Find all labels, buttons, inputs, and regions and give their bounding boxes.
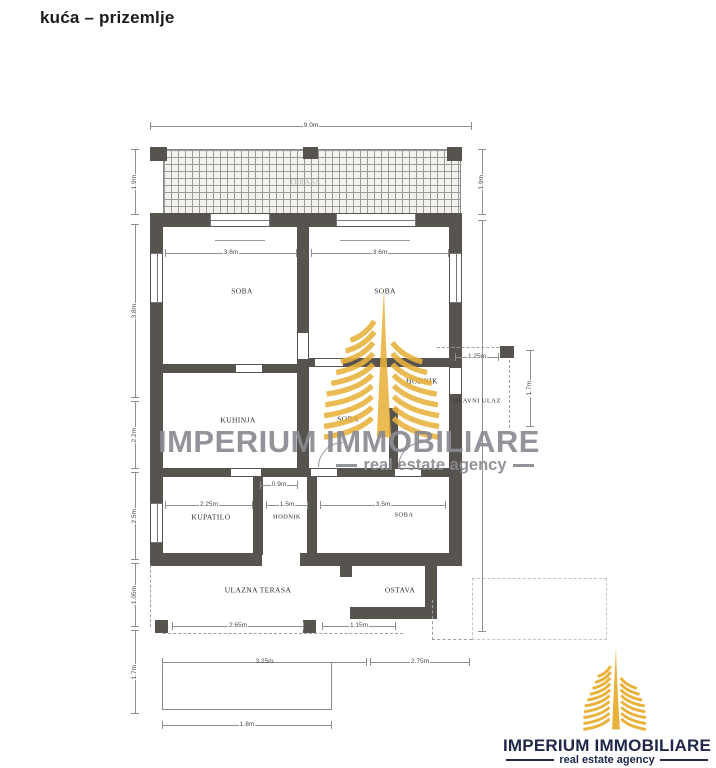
dimension-bottom-left: 3.25m — [162, 658, 367, 666]
room-label-soba1: SOBA — [231, 287, 253, 296]
dimension-left-steps: 1.7m — [131, 630, 139, 714]
room-label-glavni-ulaz: GLAVNI ULAZ — [453, 398, 500, 405]
dimension-line-right-full — [478, 220, 486, 632]
terrace-dashed-right-bottom — [432, 639, 472, 640]
dimension-hodnik-width: 1.5m — [266, 501, 308, 509]
dimension-terrace-inner-left: 2.65m — [172, 622, 304, 630]
wall-hodnik2-vertical — [307, 477, 317, 555]
terrace-dashed-right — [432, 600, 433, 640]
room-label-soba4: SOBA — [395, 512, 414, 519]
terrace-dashed-bottom — [163, 633, 403, 634]
terrace-dashed-left — [150, 565, 151, 627]
porch-dashed-top — [437, 347, 509, 348]
dimension-bottom-right: 2.75m — [370, 658, 470, 666]
room-label-soba3: SOBA — [337, 415, 359, 424]
wall-ostava-bottom — [350, 607, 437, 619]
wall-kuhinja-top — [163, 364, 297, 373]
room-label-soba2: SOBA — [374, 287, 396, 296]
dimension-soba4-width: 3.5m — [320, 501, 446, 509]
room-label-ostava: OSTAVA — [385, 586, 415, 595]
wall-bottom-left — [150, 553, 262, 566]
dimension-terrace-height-left: 1.9m — [131, 149, 139, 215]
window-left-upper — [151, 253, 162, 303]
wall-post — [447, 147, 462, 161]
dimension-porch-width: 1.25m — [455, 353, 499, 361]
logo-tagline-text: real estate agency — [559, 754, 654, 766]
door-swing-arc — [398, 442, 423, 467]
window-top-right — [336, 214, 416, 226]
dimension-top-width: 9.0m — [150, 122, 472, 130]
porch-post — [500, 346, 514, 358]
dimension-terrace-inner-right: 1.15m — [322, 622, 396, 630]
room-label-hodnik2: HODNIK — [273, 514, 301, 521]
door-gap-entrance — [450, 368, 461, 394]
room-label-terasa: TERASA — [289, 178, 321, 187]
window-sill-line — [340, 240, 410, 241]
terrace-post — [303, 620, 316, 633]
room-label-hodnik1: HODNIK — [406, 377, 438, 386]
door-gap-soba-lower — [395, 469, 421, 476]
door-gap-hodnik — [311, 469, 337, 476]
door-gap-middle — [298, 333, 308, 359]
dimension-soba1-width: 3.6m — [165, 249, 297, 257]
dimension-steps-width: 1.8m — [162, 721, 332, 729]
dimension-rooms-height: 3.8m — [131, 224, 139, 398]
dimension-porch-height: 1.7m — [526, 350, 534, 427]
side-terrace-dashed-outline — [472, 578, 607, 640]
dimension-left-mid: 2.2m — [131, 401, 139, 469]
logo-building-icon — [574, 646, 658, 732]
room-label-kupatilo: KUPATILO — [191, 513, 230, 522]
wall-hodnik-vertical — [389, 408, 398, 470]
dimension-kupatilo-width: 2.25m — [165, 501, 253, 509]
logo-brand-text: IMPERIUM IMMOBILIARE — [498, 736, 716, 756]
window-left-lower — [151, 503, 162, 543]
porch-dashed-side — [509, 360, 510, 428]
logo-tagline: real estate agency — [506, 754, 708, 766]
room-label-ulazna-terasa: ULAZNA TERASA — [225, 586, 292, 595]
door-gap-soba — [315, 359, 343, 366]
dimension-left-terrace: 1.05m — [131, 563, 139, 627]
door-swing-arc — [318, 442, 343, 467]
window-right-upper — [450, 253, 461, 303]
dimension-left-lower: 2.5m — [131, 472, 139, 560]
window-top-left — [210, 214, 270, 226]
window-sill-line — [215, 240, 265, 241]
door-gap-kuhinja — [236, 365, 262, 372]
dimension-door-width: 0.9m — [260, 481, 298, 489]
steps-outline — [162, 662, 332, 710]
door-gap-kupatilo — [231, 469, 261, 476]
terrace-post — [155, 620, 168, 633]
wall-bottom-right — [300, 553, 462, 566]
wall-post — [303, 147, 318, 159]
wall-post — [150, 147, 167, 161]
wall-ostava-step — [340, 564, 352, 577]
room-label-kuhinja: KUHINJA — [220, 416, 255, 425]
dimension-terrace-height-right: 1.9m — [478, 149, 486, 215]
dimension-soba2-width: 3.6m — [311, 249, 449, 257]
